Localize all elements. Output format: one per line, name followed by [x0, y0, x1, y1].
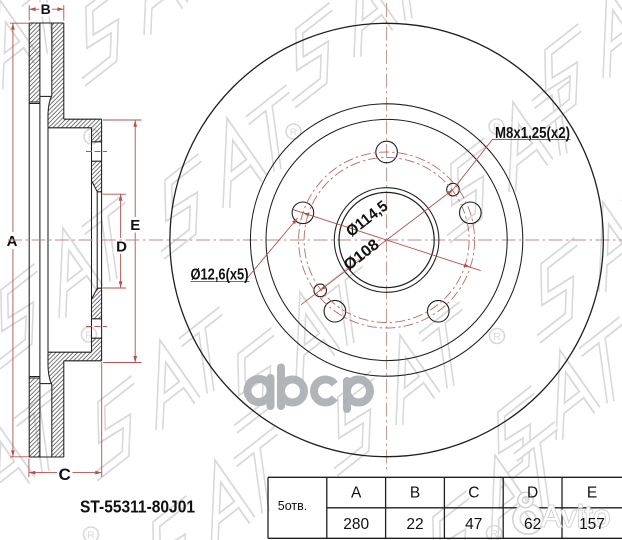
- svg-text:47: 47: [465, 516, 482, 533]
- svg-text:A: A: [351, 485, 362, 502]
- svg-text:280: 280: [343, 516, 369, 533]
- svg-text:E: E: [130, 217, 140, 234]
- svg-text:157: 157: [579, 516, 605, 533]
- svg-text:B: B: [41, 1, 51, 17]
- svg-text:B: B: [410, 485, 420, 502]
- svg-text:C: C: [468, 485, 479, 502]
- svg-text:62: 62: [524, 516, 541, 533]
- svg-text:5отв.: 5отв.: [278, 499, 307, 513]
- svg-text:A: A: [7, 233, 18, 250]
- svg-text:M8x1,25(x2): M8x1,25(x2): [495, 125, 570, 142]
- svg-text:Ø12,6(x5): Ø12,6(x5): [191, 267, 249, 284]
- svg-text:D: D: [116, 239, 127, 256]
- svg-text:D: D: [527, 485, 538, 502]
- svg-text:ST-55311-80J01: ST-55311-80J01: [80, 497, 195, 517]
- svg-text:C: C: [59, 465, 71, 484]
- svg-text:E: E: [587, 485, 597, 502]
- svg-text:22: 22: [406, 516, 423, 533]
